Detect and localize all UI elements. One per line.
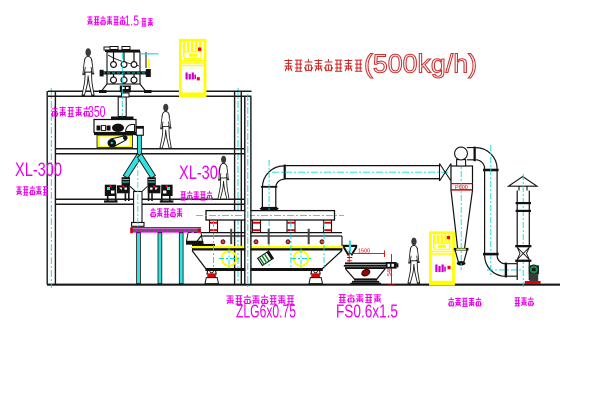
svg-text:(500kg/h): (500kg/h)	[364, 49, 477, 79]
svg-text:350: 350	[88, 104, 106, 121]
svg-text:FS0.6x1.5: FS0.6x1.5	[336, 301, 398, 322]
svg-text:1500: 1500	[358, 249, 370, 255]
svg-text:1.5: 1.5	[125, 13, 140, 30]
svg-text:ZLG6x0.75: ZLG6x0.75	[236, 301, 296, 322]
svg-text:XL-300: XL-300	[15, 160, 62, 181]
